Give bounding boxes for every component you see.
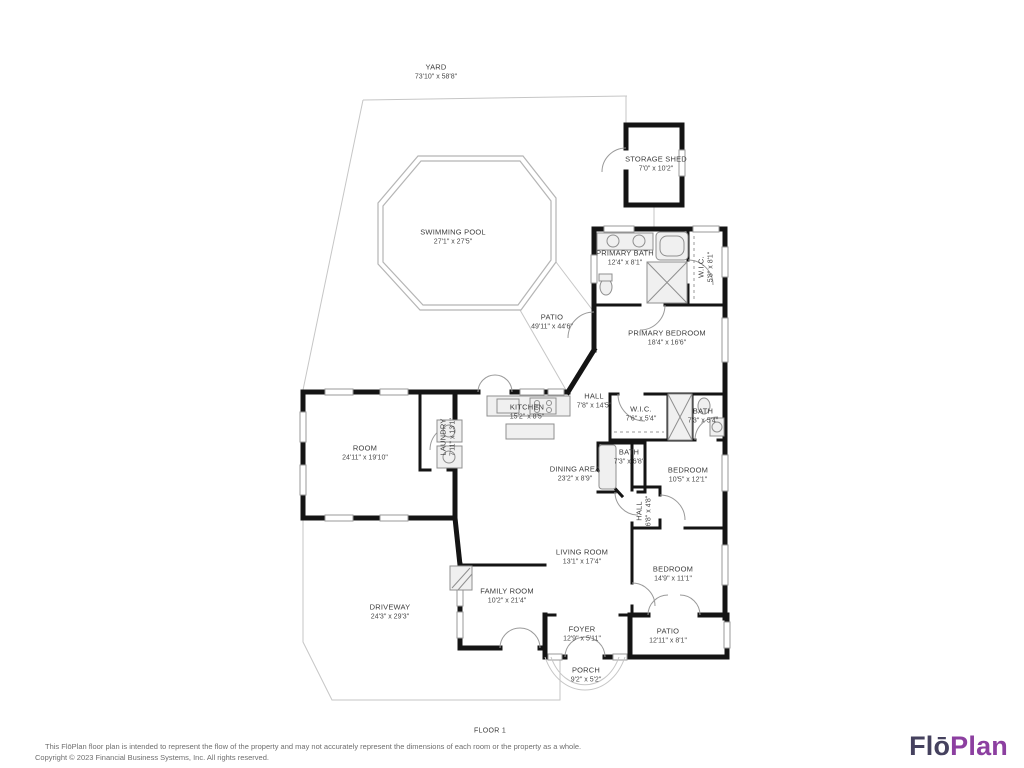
floor-label: FLOOR 1 <box>474 728 506 735</box>
room-dims: 12'4" x 8'1" <box>608 258 643 267</box>
room-label-hall: HALL7'8" x 14'5" <box>577 392 612 411</box>
room-dims: 7'6" x 5'4" <box>626 414 657 423</box>
room-name: PORCH <box>572 666 600 676</box>
room-dims: 9'2" x 5'2" <box>571 675 602 684</box>
floor-plan-drawing <box>0 0 1024 768</box>
room-dims: 23'2" x 8'9" <box>558 474 593 483</box>
floor-plan-page: YARD73'10" x 58'8" SWIMMING POOL27'1" x … <box>0 0 1024 768</box>
room-label-living-room: LIVING ROOM13'1" x 17'4" <box>556 548 608 567</box>
room-dims: 7'3" x 5'4" <box>688 416 719 425</box>
room-label-patio: PATIO49'11" x 44'6" <box>531 313 573 332</box>
room-label-wic-2: W.I.C.7'6" x 5'4" <box>626 405 657 424</box>
room-name: DINING AREA <box>550 465 601 475</box>
logo-plan: Plan <box>950 731 1008 761</box>
room-label-room: ROOM24'11" x 19'10" <box>342 444 388 463</box>
kitchen-island <box>506 424 554 439</box>
room-name: PATIO <box>657 627 679 637</box>
room-label-kitchen: KITCHEN15'2" x 8'5" <box>510 403 545 422</box>
room-label-swimming-pool: SWIMMING POOL27'1" x 27'5" <box>420 228 486 247</box>
room-dims: 7'0" x 10'2" <box>639 164 674 173</box>
room-label-storage-shed: STORAGE SHED7'0" x 10'2" <box>625 155 687 174</box>
room-dims: 5'8" x 8'1" <box>706 252 715 283</box>
room-dims: 15'2" x 8'5" <box>510 412 545 421</box>
room-name: SWIMMING POOL <box>420 228 486 238</box>
room-dims: 24'3" x 29'3" <box>371 612 409 621</box>
door-swings <box>430 260 718 657</box>
room-dims: 12'11" x 8'1" <box>649 636 687 645</box>
room-name: LIVING ROOM <box>556 548 608 558</box>
room-dims: 7'8" x 14'5" <box>577 401 612 410</box>
room-dims: 10'2" x 21'4" <box>488 596 526 605</box>
room-name: FOYER <box>569 625 596 635</box>
room-dims: 24'11" x 19'10" <box>342 453 388 462</box>
room-name: KITCHEN <box>510 403 544 413</box>
room-dims: 49'11" x 44'6" <box>531 322 573 331</box>
room-name: PATIO <box>541 313 563 323</box>
room-name: PRIMARY BEDROOM <box>628 329 706 339</box>
room-label-bedroom-1: BEDROOM10'5" x 12'1" <box>668 466 708 485</box>
room-label-bath-mid: BATH7'3" x 6'8" <box>614 448 645 467</box>
room-dims: 13'1" x 17'4" <box>563 557 601 566</box>
room-name: STORAGE SHED <box>625 155 687 165</box>
room-label-family-room: FAMILY ROOM10'2" x 21'4" <box>480 587 534 606</box>
room-label-yard: YARD73'10" x 58'8" <box>415 63 457 82</box>
room-label-bath-upper: BATH7'3" x 5'4" <box>688 407 719 426</box>
room-label-primary-bath: PRIMARY BATH12'4" x 8'1" <box>596 249 654 268</box>
disclaimer-line-2: Copyright © 2023 Financial Business Syst… <box>35 753 985 764</box>
room-label-foyer: FOYER12'9" x 5'11" <box>563 625 601 644</box>
room-name: BATH <box>693 407 713 417</box>
room-name: HALL <box>584 392 604 402</box>
fixtures <box>437 232 724 590</box>
room-label-hall-2: HALL6'8" x 4'8" <box>635 496 654 527</box>
room-name: LAUNDRY <box>439 418 449 455</box>
room-label-bedroom-2: BEDROOM14'9" x 11'1" <box>653 565 693 584</box>
room-dims: 6'8" x 4'8" <box>644 496 653 527</box>
room-name: ROOM <box>353 444 377 454</box>
room-name: YARD <box>425 63 446 73</box>
room-name: DRIVEWAY <box>370 603 411 613</box>
disclaimer: This FlōPlan floor plan is intended to r… <box>35 742 985 764</box>
room-label-porch: PORCH9'2" x 5'2" <box>571 666 602 685</box>
room-label-primary-bedroom: PRIMARY BEDROOM18'4" x 16'6" <box>628 329 706 348</box>
disclaimer-line-1: This FlōPlan floor plan is intended to r… <box>35 742 985 753</box>
room-name: W.I.C. <box>630 405 652 415</box>
room-label-driveway: DRIVEWAY24'3" x 29'3" <box>370 603 411 622</box>
logo-flo: Flō <box>909 731 950 761</box>
room-name: BEDROOM <box>653 565 693 575</box>
room-dims: 73'10" x 58'8" <box>415 72 457 81</box>
room-name: BATH <box>619 448 639 458</box>
room-name: PRIMARY BATH <box>596 249 654 259</box>
room-dims: 18'4" x 16'6" <box>648 338 686 347</box>
room-dims: 10'5" x 12'1" <box>669 475 707 484</box>
room-dims: 7'3" x 6'8" <box>614 457 645 466</box>
room-dims: 12'9" x 5'11" <box>563 634 601 643</box>
room-dims: 7'11" x 13'1" <box>448 418 457 456</box>
room-name: BEDROOM <box>668 466 708 476</box>
room-name: FAMILY ROOM <box>480 587 534 597</box>
room-name: HALL <box>635 501 645 521</box>
room-label-wic-primary: W.I.C.5'8" x 8'1" <box>697 252 716 283</box>
room-label-patio-2: PATIO12'11" x 8'1" <box>649 627 687 646</box>
room-label-dining-area: DINING AREA23'2" x 8'9" <box>550 465 601 484</box>
floplan-logo: FlōPlan <box>909 731 1008 762</box>
room-dims: 14'9" x 11'1" <box>654 574 692 583</box>
room-name: W.I.C. <box>697 256 707 278</box>
room-label-laundry: LAUNDRY7'11" x 13'1" <box>439 418 458 456</box>
room-dims: 27'1" x 27'5" <box>434 237 472 246</box>
